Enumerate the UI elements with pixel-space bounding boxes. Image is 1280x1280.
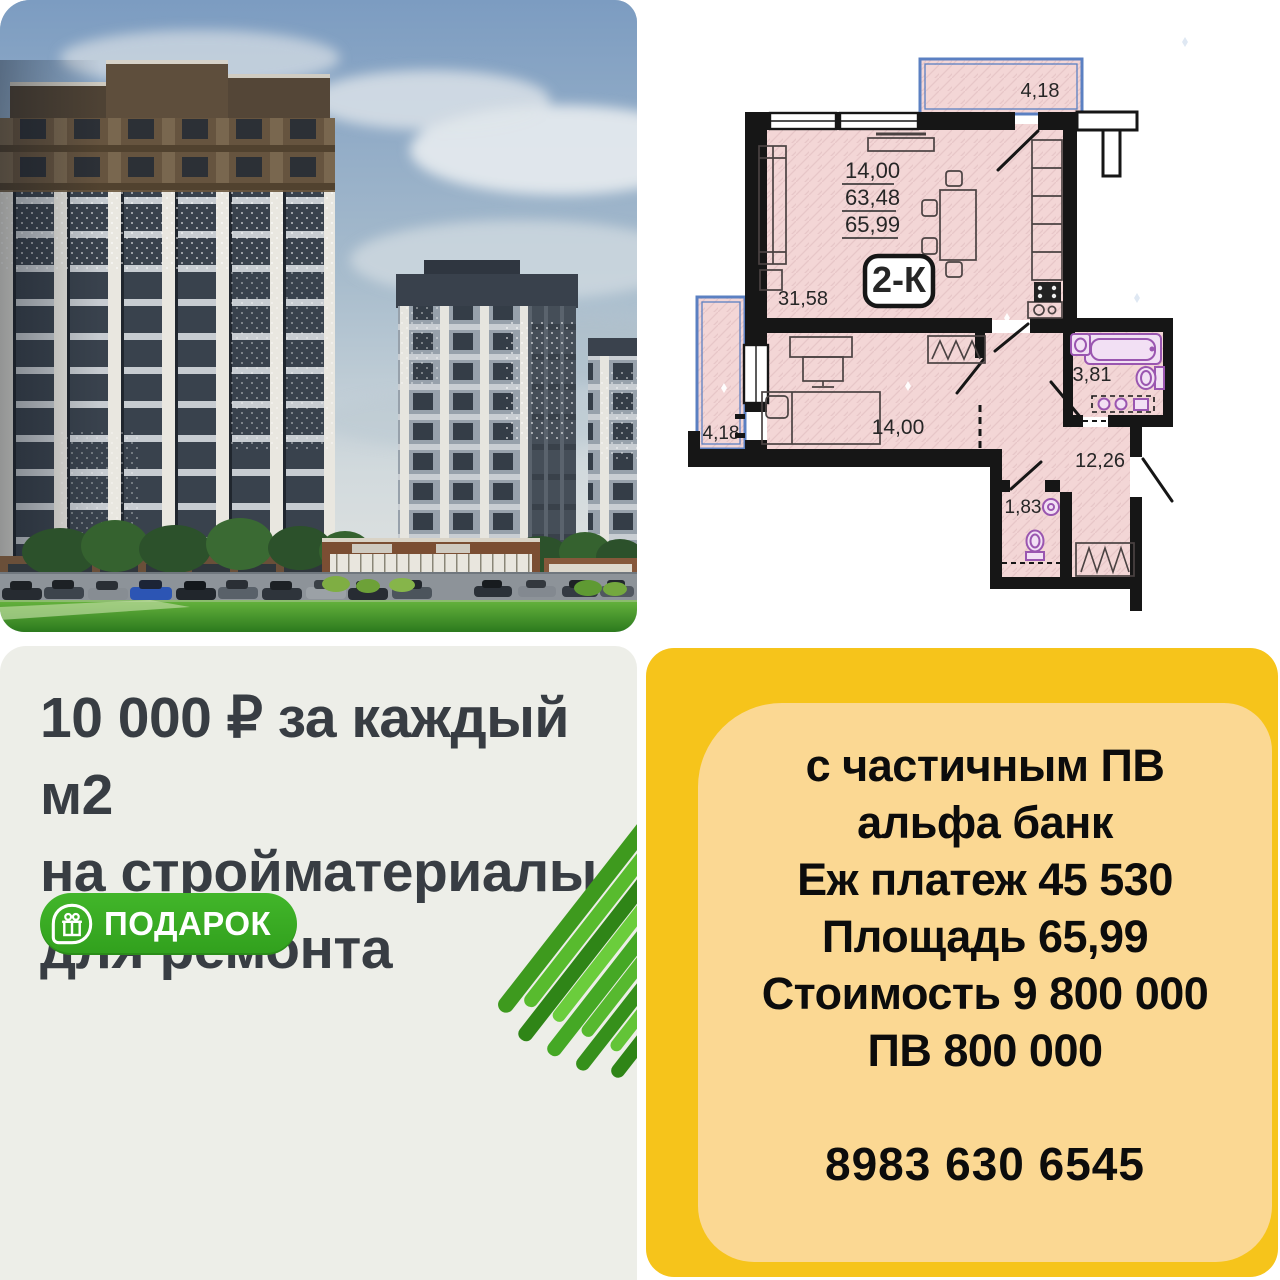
balcony-left: 4,18 (697, 297, 745, 449)
gift-icon (50, 902, 94, 946)
hall-area: 12,26 (1075, 450, 1125, 472)
balcony-left-area: 4,18 (703, 423, 740, 444)
promo-card: 10 000 ₽ за каждый м2 на стройматериалы … (0, 646, 637, 1280)
lawn (0, 600, 637, 632)
stove-icon (1034, 282, 1061, 302)
area-total-1: 14,00 (845, 158, 900, 183)
offer-line-monthly: Еж платеж 45 530 (698, 851, 1272, 908)
unit-type-label: 2-К (872, 259, 927, 300)
offer-inner-panel: с частичным ПВ альфа банк Еж платеж 45 5… (698, 703, 1272, 1262)
ad-collage: 4,18 4,18 (0, 0, 1280, 1280)
area-total-2: 63,48 (845, 185, 900, 210)
grass-decoration (383, 786, 637, 1206)
bedroom-area: 14,00 (872, 416, 925, 439)
offer-line-price: Стоимость 9 800 000 (698, 965, 1272, 1022)
offer-line-area: Площадь 65,99 (698, 908, 1272, 965)
gift-badge-label: ПОДАРОК (104, 905, 271, 943)
wc-area: 1,83 (1005, 497, 1042, 518)
balcony-top: 4,18 (920, 59, 1082, 114)
cars-row (2, 580, 634, 600)
offer-line-pv: ПВ 800 000 (698, 1022, 1272, 1079)
balcony-top-area: 4,18 (1021, 80, 1060, 102)
offer-line-bank: альфа банк (698, 794, 1272, 851)
right-tower (396, 260, 578, 558)
phone-number: 8983 630 6545 (698, 1136, 1272, 1193)
gift-badge: ПОДАРОК (40, 893, 297, 955)
building-photo-scene (0, 0, 637, 632)
unit-type-badge: 2-К (865, 256, 933, 306)
area-total-3: 65,99 (845, 212, 900, 237)
offer-card: с частичным ПВ альфа банк Еж платеж 45 5… (646, 648, 1278, 1277)
bathroom-area: 3,81 (1073, 364, 1112, 386)
floor-plan-drawing: 4,18 4,18 (640, 0, 1280, 640)
floor-plan: 4,18 4,18 (640, 0, 1280, 640)
wall-stubs (1077, 112, 1137, 176)
building-photo (0, 0, 637, 632)
offer-line-downpayment: с частичным ПВ (698, 737, 1272, 794)
living-area: 31,58 (778, 288, 828, 310)
offer-lines: с частичным ПВ альфа банк Еж платеж 45 5… (698, 737, 1272, 1079)
